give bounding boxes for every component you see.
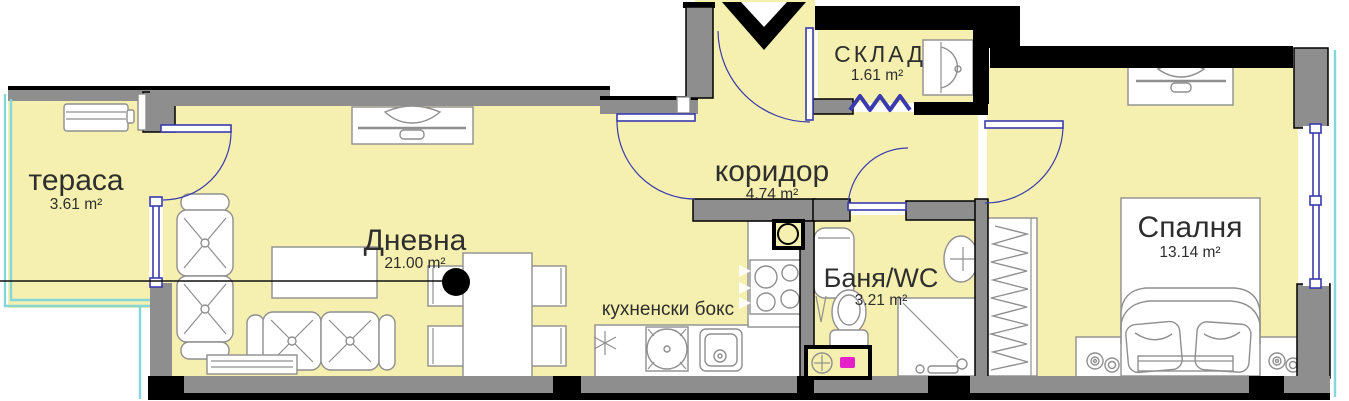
area-storage: 1.61 m² bbox=[851, 67, 904, 84]
bedroom-window-icon bbox=[1303, 124, 1329, 288]
section-marker-icon bbox=[442, 268, 470, 296]
stove-icon bbox=[750, 260, 803, 314]
magenta-marker bbox=[840, 357, 855, 368]
area-bedroom: 13.14 m² bbox=[1159, 244, 1220, 261]
ac-unit-icon bbox=[64, 104, 134, 131]
kitchen-sink-icon bbox=[700, 329, 742, 371]
label-living: Дневна bbox=[364, 224, 467, 257]
area-living: 21.00 m² bbox=[384, 255, 445, 272]
washing-machine-icon bbox=[923, 40, 973, 95]
label-bath: Баня/WC bbox=[824, 263, 939, 293]
tv-icon bbox=[352, 106, 473, 144]
label-corridor: коридор bbox=[715, 155, 829, 188]
area-bath: 3.21 m² bbox=[855, 292, 908, 309]
label-kitchen: кухненски бокс bbox=[602, 299, 734, 320]
area-corridor: 4.74 m² bbox=[746, 186, 799, 203]
installation-box bbox=[806, 347, 870, 378]
coffee-table-icon bbox=[272, 247, 377, 298]
terrace-window-icon bbox=[149, 197, 163, 287]
shower-icon bbox=[898, 298, 978, 376]
vent-shaft-icon bbox=[774, 221, 803, 248]
room-corridor-floor bbox=[815, 112, 978, 204]
label-bedroom: Спалня bbox=[1138, 211, 1243, 244]
bath-sink-icon bbox=[944, 236, 978, 282]
label-storage: СКЛАД bbox=[834, 41, 926, 67]
floor-plan: тераса 3.61 m² Дневна 21.00 m² коридор 4… bbox=[0, 0, 1349, 401]
label-terrace: тераса bbox=[28, 164, 123, 197]
wardrobe-icon bbox=[987, 218, 1037, 376]
area-terrace: 3.61 m² bbox=[50, 196, 103, 213]
console-table-icon bbox=[207, 355, 297, 374]
